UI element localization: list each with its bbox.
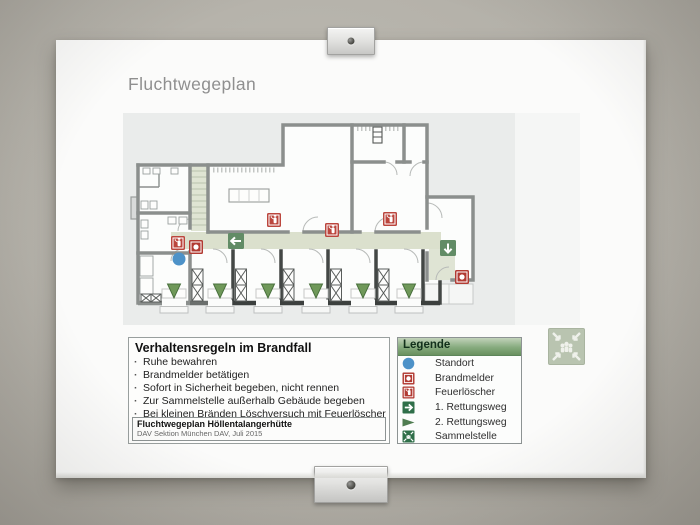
fire-alarm-icon <box>455 270 469 284</box>
legend-label: 1. Rettungsweg <box>435 402 507 413</box>
escape-route-left-icon <box>228 233 244 249</box>
fire-alarm-icon <box>189 240 203 254</box>
sammelstelle-assembly-icon <box>548 328 585 365</box>
page-title: Fluchtwegeplan <box>128 74 256 95</box>
legend-row-sammelstelle: Sammelstelle <box>398 429 521 444</box>
rettungsweg-1-icon <box>402 401 415 414</box>
plan-footer-box: Fluchtwegeplan Höllentalangerhütte DAV S… <box>132 417 386 441</box>
you-are-here-icon <box>173 253 186 266</box>
escape-route-down-icon <box>440 240 456 256</box>
legend-label: Sammelstelle <box>435 431 497 442</box>
plan-footer-title: Fluchtwegeplan Höllentalangerhütte <box>137 419 381 429</box>
fire-extinguisher-icon <box>267 213 281 227</box>
legend-row-rettungsweg-1: 1. Rettungsweg <box>398 400 521 415</box>
legend-row-brandmelder: Brandmelder <box>398 371 521 386</box>
fire-extinguisher-icon <box>383 212 397 226</box>
rule-item: Sofort in Sicherheit begeben, nicht renn… <box>129 382 389 395</box>
glass-right-edge <box>643 40 646 478</box>
fire-rules-panel: Verhaltensregeln im Brandfall Ruhe bewah… <box>128 337 390 444</box>
brandmelder-icon <box>402 372 415 385</box>
feuerloescher-icon <box>402 386 415 399</box>
glass-bottom-edge <box>56 472 646 478</box>
legend-label: Standort <box>435 358 474 369</box>
fire-rules-title: Verhaltensregeln im Brandfall <box>135 341 389 355</box>
rule-item: Ruhe bewahren <box>129 356 389 369</box>
screw-icon <box>347 480 356 489</box>
sammelstelle-icon <box>402 430 415 443</box>
screw-icon <box>348 38 355 45</box>
legend-title: Legende <box>398 338 521 356</box>
legend-label: Feuerlöscher <box>435 387 495 398</box>
escape-plan-poster: Fluchtwegeplan <box>56 40 646 478</box>
photo-wall-scene: Fluchtwegeplan <box>0 0 700 525</box>
legend-row-rettungsweg-2: 2. Rettungsweg <box>398 415 521 430</box>
fire-extinguisher-icon <box>171 236 185 250</box>
legend-label: 2. Rettungsweg <box>435 417 507 428</box>
fire-rules-list: Ruhe bewahren Brandmelder betätigen Sofo… <box>129 356 389 421</box>
floor-plan <box>123 113 580 325</box>
fire-extinguisher-icon <box>325 223 339 237</box>
rule-item: Brandmelder betätigen <box>129 369 389 382</box>
plan-footer-subtitle: DAV Sektion München DAV, Juli 2015 <box>137 429 381 438</box>
floor-plan-svg <box>123 113 580 325</box>
legend-row-standort: Standort <box>398 356 521 371</box>
standort-icon <box>402 357 415 370</box>
frame-clip-top <box>327 27 375 55</box>
legend-row-feuerloescher: Feuerlöscher <box>398 385 521 400</box>
rule-item: Zur Sammelstelle außerhalb Gebäude begeb… <box>129 395 389 408</box>
legend-label: Brandmelder <box>435 373 494 384</box>
legend-panel: Legende Standort Brandmelder <box>397 337 522 444</box>
rettungsweg-2-icon <box>402 416 415 429</box>
assembly-point-pictogram <box>548 328 585 365</box>
